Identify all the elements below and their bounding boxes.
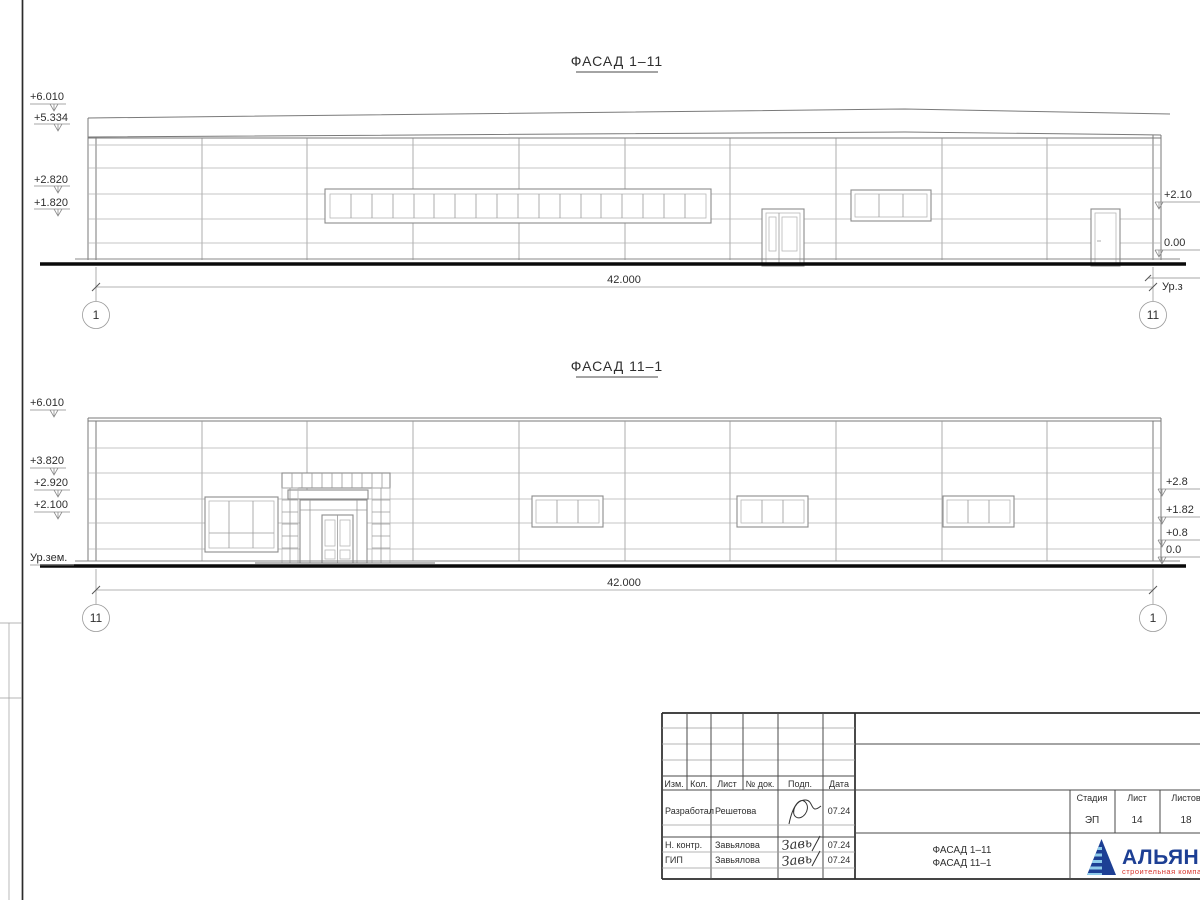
svg-text:Завьялова: Завьялова	[715, 855, 760, 865]
svg-text:Ур.з: Ур.з	[1162, 281, 1183, 293]
svg-text:Дата: Дата	[829, 779, 849, 789]
drawing-title: ФАСАД 1–11 ФАСАД 11–1	[933, 845, 992, 869]
sign-board	[288, 490, 368, 499]
svg-text:11: 11	[1147, 308, 1160, 322]
dimension-42000: 42.000	[92, 267, 1157, 301]
svg-text:+3.820: +3.820	[30, 455, 64, 467]
svg-text:+2.10: +2.10	[1164, 189, 1192, 201]
title-block-row: Н. контр. Завьялова Завь 07.24	[665, 836, 850, 854]
signature-scribble: Завь	[781, 852, 813, 870]
svg-text:Завьялова: Завьялова	[715, 840, 760, 850]
facade-11-1-title: ФАСАД 11–1	[571, 358, 663, 374]
svg-text:11: 11	[90, 611, 103, 625]
svg-text:ФАСАД 1–11: ФАСАД 1–11	[933, 845, 992, 856]
parapet	[88, 109, 1170, 137]
svg-text:Подп.: Подп.	[788, 779, 812, 789]
svg-text:+2.100: +2.100	[34, 499, 68, 511]
sheet-number: 14	[1131, 815, 1143, 826]
level-mark: +2.10	[1155, 189, 1200, 209]
logo-pyramid-icon	[1087, 839, 1116, 875]
grid-bubble-1: 1	[83, 302, 110, 329]
grid-bubble-11: 11	[1140, 302, 1167, 329]
level-mark: +6.010	[30, 91, 66, 111]
svg-text:0.0: 0.0	[1166, 544, 1181, 556]
signature-stroke	[812, 851, 820, 866]
drawing-sheet: ФАСАД 1–11	[0, 0, 1200, 900]
svg-text:Лист: Лист	[717, 779, 737, 789]
logo-name: АЛЬЯНС	[1122, 846, 1200, 869]
svg-text:Н. контр.: Н. контр.	[665, 840, 702, 850]
signature-stroke	[812, 836, 820, 851]
stage-sheet-values: ЭП 14 18	[1085, 815, 1192, 826]
single-door	[1091, 209, 1120, 266]
stage-value: ЭП	[1085, 815, 1099, 826]
ribbon-window	[325, 189, 711, 223]
level-mark: +1.82	[1158, 504, 1200, 524]
svg-text:+6.010: +6.010	[30, 91, 64, 103]
level-mark: +3.820	[30, 455, 66, 475]
grid-bubble-1: 1	[1140, 605, 1167, 632]
svg-text:0.00: 0.00	[1164, 237, 1185, 249]
company-logo: АЛЬЯНС строительная компания	[1087, 839, 1200, 876]
sheet-frame	[0, 0, 23, 900]
level-mark: +5.334	[34, 112, 70, 131]
svg-text:1: 1	[1150, 611, 1157, 625]
facade-1-11: ФАСАД 1–11	[30, 53, 1200, 329]
svg-text:Изм.: Изм.	[664, 779, 683, 789]
svg-text:№ док.: № док.	[746, 779, 775, 789]
dimension-42000: 42.000	[92, 569, 1157, 604]
svg-text:+1.82: +1.82	[1166, 504, 1194, 516]
svg-text:07.24: 07.24	[828, 855, 851, 865]
ground-level-label: Ур.зем.	[30, 552, 74, 565]
svg-text:+2.820: +2.820	[34, 174, 68, 186]
svg-text:07.24: 07.24	[828, 806, 851, 816]
svg-text:+2.8: +2.8	[1166, 476, 1188, 488]
title-block: Изм. Кол. Лист № док. Подп. Дата Разрабо…	[662, 713, 1200, 879]
svg-text:+6.010: +6.010	[30, 397, 64, 409]
svg-text:+0.8: +0.8	[1166, 527, 1188, 539]
svg-text:ФАСАД 11–1: ФАСАД 11–1	[933, 858, 992, 869]
dimension-text: 42.000	[607, 274, 641, 286]
small-window	[851, 190, 931, 221]
svg-text:+5.334: +5.334	[34, 112, 68, 124]
level-mark: +2.100	[34, 499, 70, 519]
stage-sheet-headers: Стадия Лист Листов	[1077, 793, 1200, 803]
level-mark: +2.8	[1158, 476, 1200, 496]
signature-scribble	[789, 800, 821, 824]
double-door	[762, 209, 804, 266]
entrance-portal	[255, 473, 435, 563]
svg-text:ГИП: ГИП	[665, 855, 683, 865]
dimension-text: 42.000	[607, 577, 641, 589]
level-mark: +2.820	[34, 174, 70, 193]
facade-1-11-title: ФАСАД 1–11	[571, 53, 663, 69]
svg-text:Решетова: Решетова	[715, 806, 756, 816]
svg-text:Стадия: Стадия	[1077, 793, 1108, 803]
entrance-glazing	[300, 500, 367, 563]
svg-text:Листов: Листов	[1171, 793, 1200, 803]
svg-text:Кол.: Кол.	[690, 779, 708, 789]
title-block-headers: Изм. Кол. Лист № док. Подп. Дата	[664, 779, 849, 789]
svg-text:1: 1	[93, 308, 100, 322]
facade-11-1: ФАСАД 11–1	[30, 358, 1200, 632]
svg-text:Ур.зем.: Ур.зем.	[30, 552, 67, 564]
svg-text:07.24: 07.24	[828, 840, 851, 850]
level-mark: +2.920	[34, 477, 70, 497]
parapet	[88, 418, 1161, 421]
svg-text:Лист: Лист	[1127, 793, 1147, 803]
grid-bubble-11: 11	[83, 605, 110, 632]
drawing-canvas: ФАСАД 1–11	[0, 0, 1200, 900]
title-block-row: Разработал Решетова 07.24	[665, 800, 850, 824]
svg-text:+1.820: +1.820	[34, 197, 68, 209]
logo-subtitle: строительная компания	[1122, 867, 1200, 876]
level-mark: +1.820	[34, 197, 70, 216]
storefront-window	[205, 497, 278, 552]
title-block-row: ГИП Завьялова Завь 07.24	[665, 851, 850, 870]
svg-text:Разработал: Разработал	[665, 806, 714, 816]
sheets-total: 18	[1180, 815, 1192, 826]
level-mark: +6.010	[30, 397, 66, 417]
svg-text:+2.920: +2.920	[34, 477, 68, 489]
level-mark: 0.00	[1155, 237, 1200, 257]
